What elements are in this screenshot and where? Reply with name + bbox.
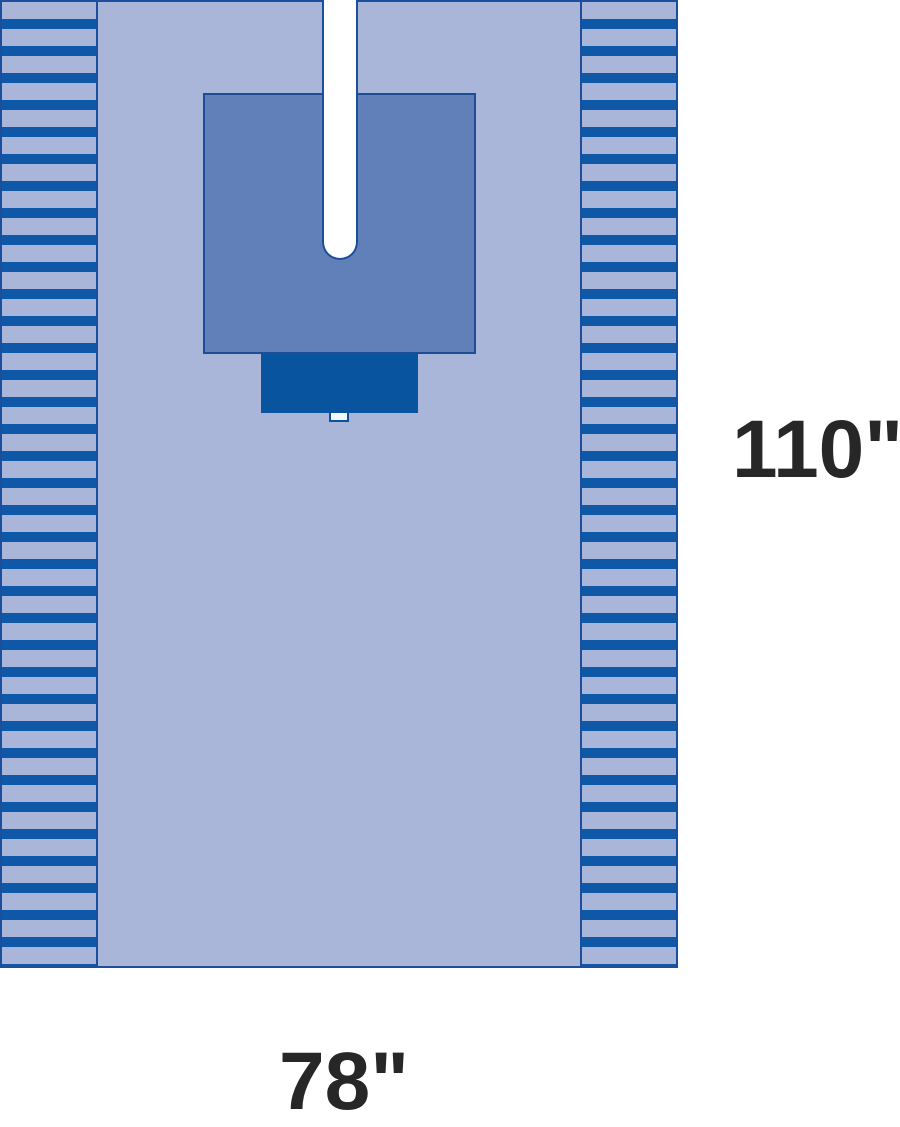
- fluid-pouch: [261, 354, 418, 413]
- right-striped-edge: [580, 2, 676, 966]
- drape-body: [0, 0, 678, 968]
- height-dimension-label: 110": [732, 409, 900, 491]
- pouch-tab: [329, 411, 349, 422]
- figure-canvas: 110" 78": [0, 0, 900, 1127]
- left-striped-edge: [2, 2, 98, 966]
- fenestration-slit: [322, 0, 358, 260]
- width-dimension-label: 78": [279, 1041, 409, 1123]
